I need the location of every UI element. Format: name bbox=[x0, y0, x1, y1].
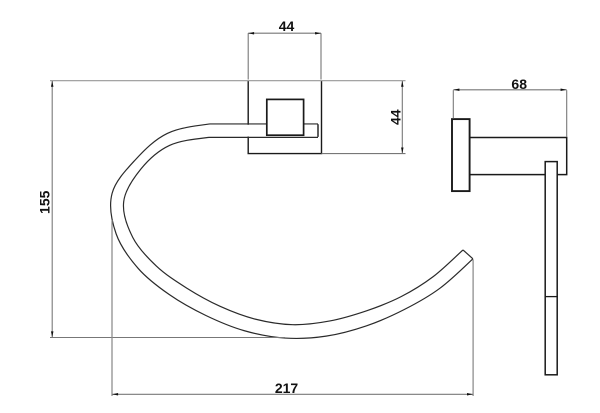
svg-text:44: 44 bbox=[279, 18, 295, 34]
svg-text:155: 155 bbox=[37, 190, 53, 214]
svg-text:217: 217 bbox=[275, 380, 299, 396]
svg-text:68: 68 bbox=[511, 76, 527, 92]
svg-text:44: 44 bbox=[388, 109, 404, 125]
